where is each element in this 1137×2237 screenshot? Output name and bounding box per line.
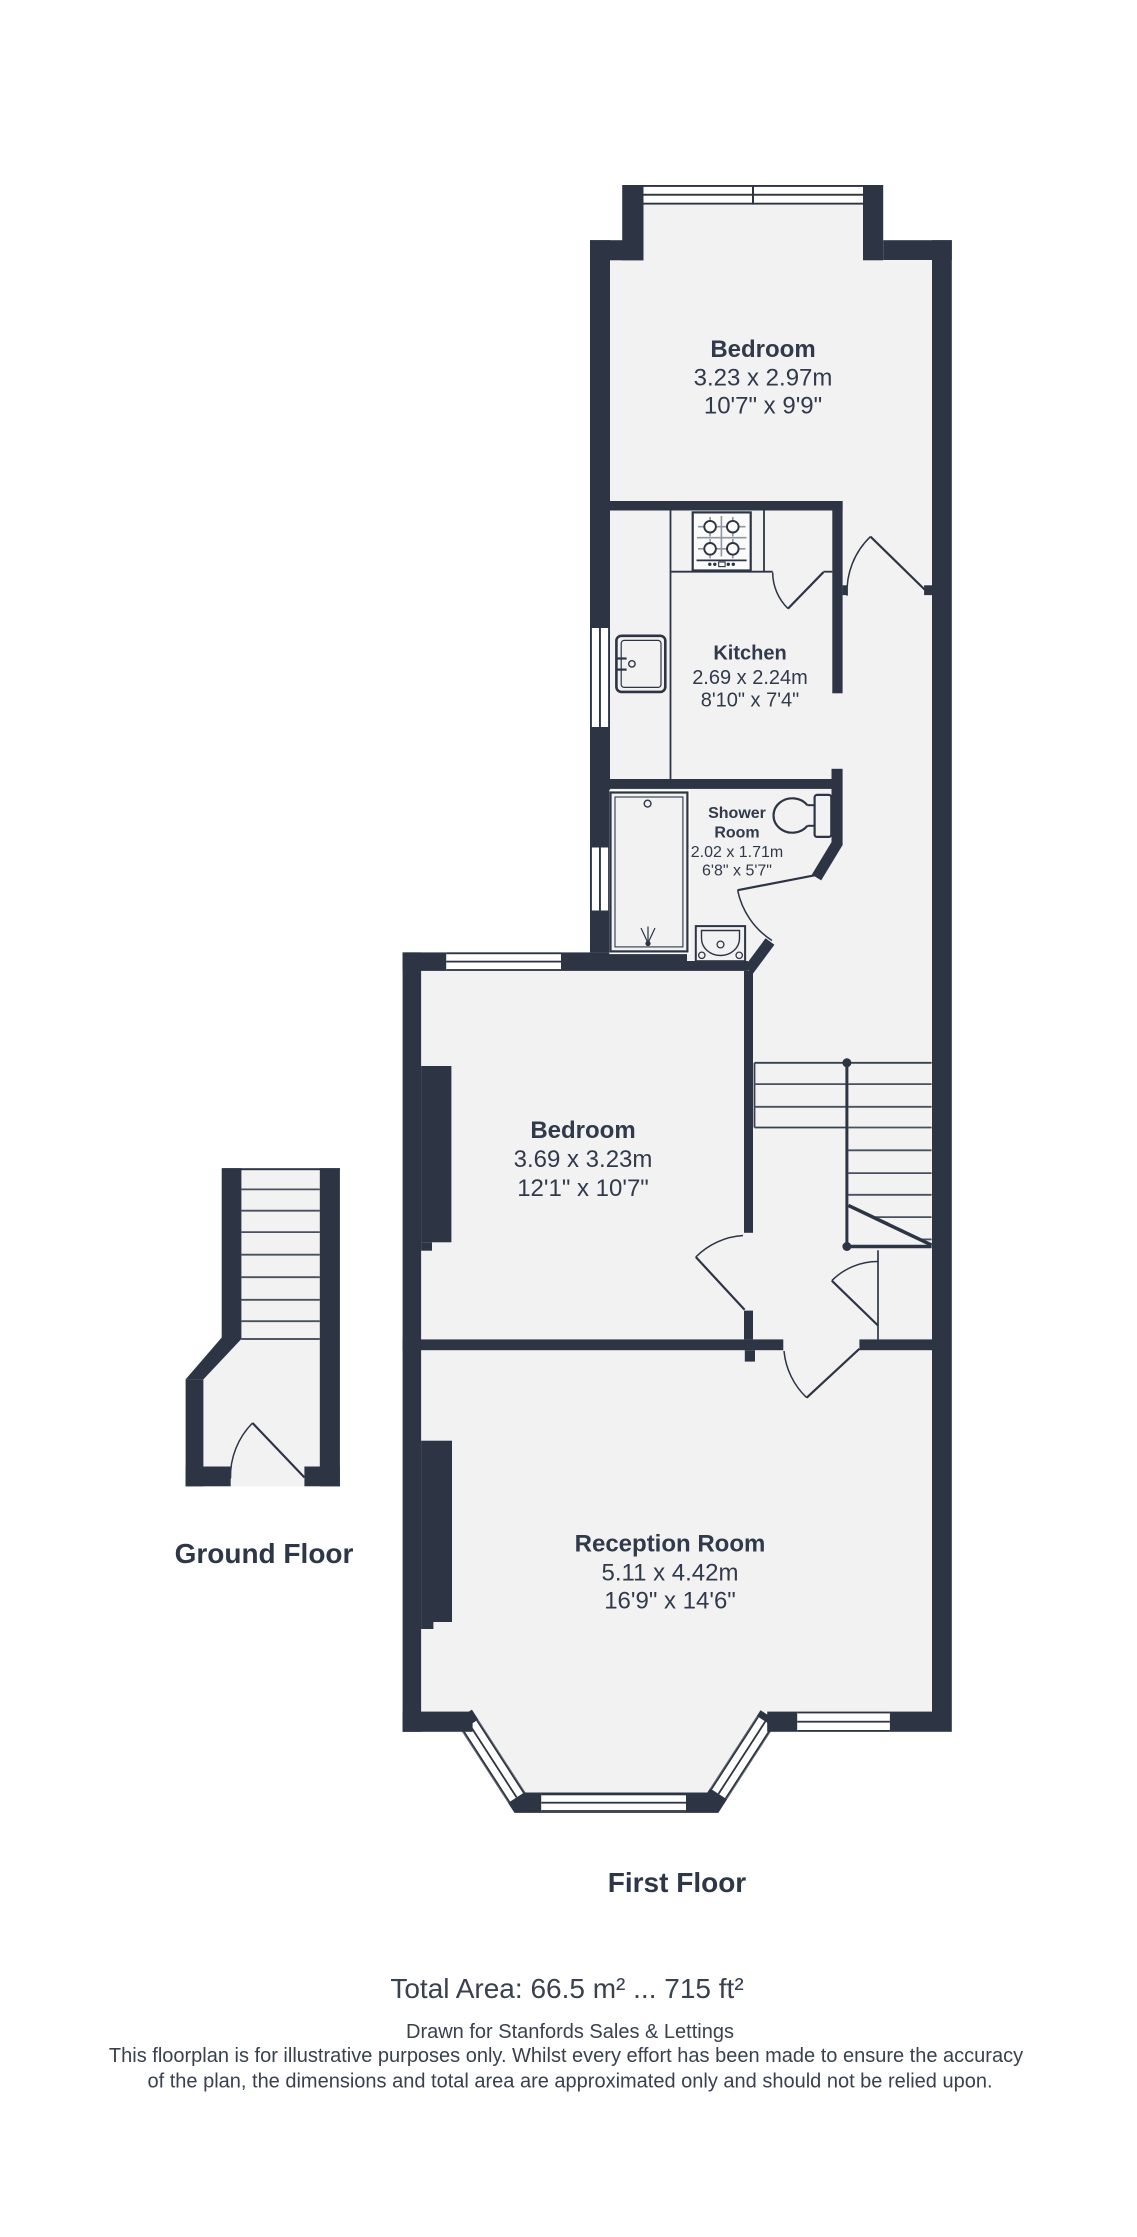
svg-text:Bedroom: Bedroom: [530, 1117, 635, 1144]
svg-text:This floorplan is for illustra: This floorplan is for illustrative purpo…: [109, 2045, 1023, 2067]
svg-text:Kitchen: Kitchen: [713, 643, 786, 665]
svg-text:Reception Room: Reception Room: [575, 1531, 766, 1558]
svg-text:Shower: Shower: [708, 805, 766, 822]
svg-text:2.69 x 2.24m: 2.69 x 2.24m: [692, 667, 808, 689]
svg-text:10'7" x 9'9": 10'7" x 9'9": [704, 393, 822, 420]
svg-text:3.69 x 3.23m: 3.69 x 3.23m: [514, 1146, 653, 1173]
svg-text:First Floor: First Floor: [608, 1867, 747, 1898]
svg-text:5.11 x 4.42m: 5.11 x 4.42m: [602, 1559, 739, 1586]
svg-text:Drawn for Stanfords Sales & Le: Drawn for Stanfords Sales & Lettings: [406, 2021, 734, 2043]
svg-text:3.23 x 2.97m: 3.23 x 2.97m: [694, 365, 833, 392]
svg-text:Room: Room: [714, 825, 759, 842]
svg-text:8'10" x 7'4": 8'10" x 7'4": [701, 690, 800, 712]
svg-text:2.02 x 1.71m: 2.02 x 1.71m: [691, 844, 784, 861]
svg-text:16'9" x 14'6": 16'9" x 14'6": [604, 1588, 736, 1615]
svg-text:6'8" x 5'7": 6'8" x 5'7": [702, 863, 772, 880]
svg-text:Ground Floor: Ground Floor: [175, 1538, 354, 1569]
svg-text:Total Area: 66.5 m² ... 715 ft: Total Area: 66.5 m² ... 715 ft²: [390, 1973, 743, 2004]
svg-text:Bedroom: Bedroom: [710, 336, 815, 363]
svg-text:12'1" x 10'7": 12'1" x 10'7": [517, 1175, 649, 1202]
svg-text:of the plan, the dimensions an: of the plan, the dimensions and total ar…: [147, 2071, 992, 2093]
